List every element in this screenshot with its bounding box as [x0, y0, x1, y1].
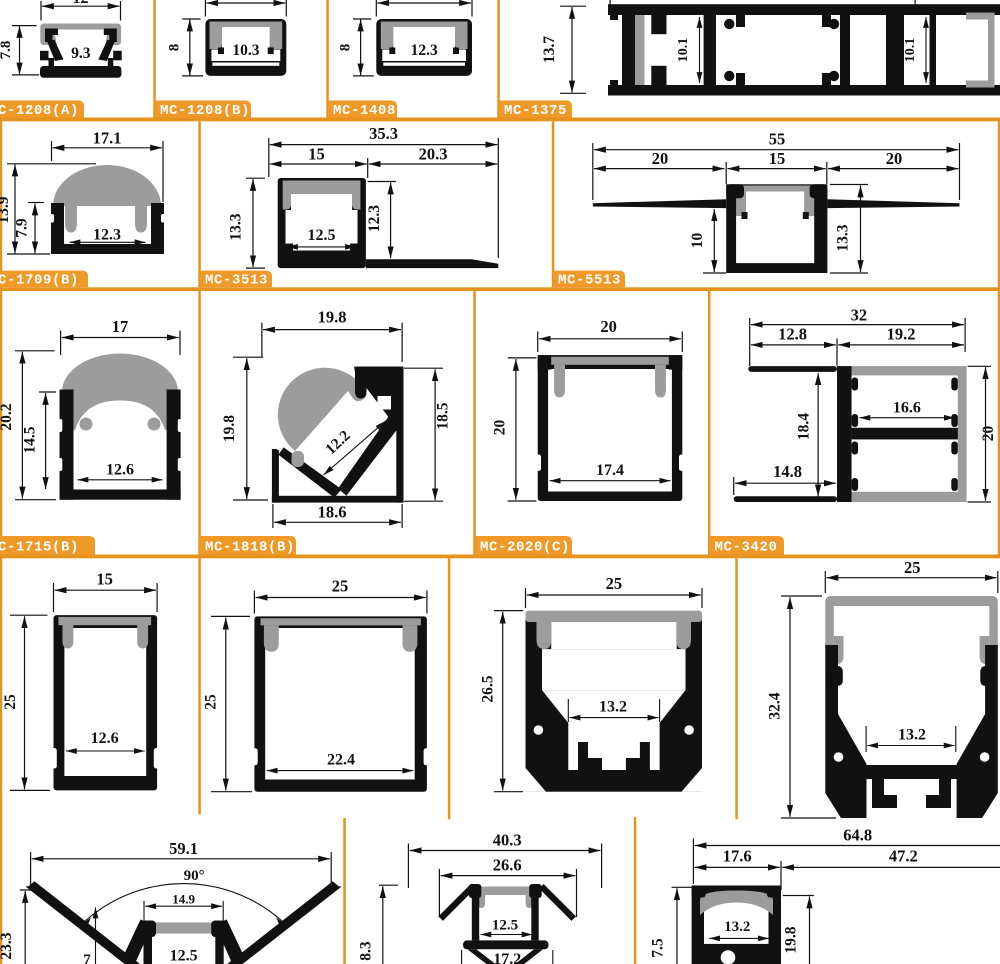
svg-text:13.9: 13.9 [0, 196, 12, 223]
svg-text:17: 17 [112, 317, 129, 336]
svg-text:MC-1715(B): MC-1715(B) [0, 540, 79, 556]
svg-text:MC-1408: MC-1408 [333, 103, 396, 119]
svg-text:12.6: 12.6 [91, 730, 119, 747]
svg-text:18.5: 18.5 [435, 402, 452, 429]
svg-text:8: 8 [338, 44, 354, 52]
svg-text:12.5: 12.5 [492, 918, 518, 934]
svg-text:7.8: 7.8 [0, 41, 14, 60]
svg-text:47.2: 47.2 [889, 847, 918, 866]
svg-text:64.8: 64.8 [843, 826, 872, 845]
svg-text:9.3: 9.3 [71, 45, 91, 62]
svg-text:19.8: 19.8 [221, 415, 238, 442]
svg-text:16.6: 16.6 [893, 400, 921, 417]
svg-text:13.2: 13.2 [724, 919, 750, 935]
svg-text:19.2: 19.2 [887, 325, 916, 344]
svg-text:20: 20 [492, 420, 509, 436]
svg-text:13.3: 13.3 [228, 213, 245, 240]
svg-text:10: 10 [689, 233, 706, 249]
svg-text:7.5: 7.5 [650, 938, 667, 958]
svg-text:7: 7 [83, 952, 91, 964]
svg-text:MC-3513: MC-3513 [205, 273, 268, 289]
svg-text:59.1: 59.1 [169, 839, 198, 858]
svg-text:35.3: 35.3 [369, 124, 398, 143]
svg-text:14.9: 14.9 [172, 892, 195, 907]
svg-text:26.5: 26.5 [480, 675, 497, 702]
svg-text:32.4: 32.4 [767, 692, 784, 719]
svg-text:20: 20 [886, 149, 903, 168]
svg-text:12.5: 12.5 [170, 948, 198, 964]
svg-text:MC-1375: MC-1375 [504, 103, 567, 119]
svg-text:90°: 90° [184, 868, 205, 884]
svg-text:7.9: 7.9 [14, 218, 31, 238]
svg-text:25: 25 [2, 694, 19, 710]
svg-text:25: 25 [332, 577, 349, 596]
svg-text:MC-5513: MC-5513 [558, 273, 621, 289]
svg-text:MC-2020(C): MC-2020(C) [480, 540, 570, 556]
svg-text:12.8: 12.8 [778, 325, 807, 344]
svg-text:17.2: 17.2 [493, 951, 521, 964]
svg-text:MC-3420: MC-3420 [715, 540, 778, 556]
svg-text:20.3: 20.3 [419, 145, 448, 164]
svg-text:14.5: 14.5 [22, 426, 39, 453]
svg-text:14.8: 14.8 [773, 462, 802, 481]
svg-text:23.3: 23.3 [0, 932, 15, 959]
svg-text:13.3: 13.3 [835, 224, 852, 251]
svg-text:12.6: 12.6 [106, 462, 134, 479]
svg-text:MC-1818(B): MC-1818(B) [205, 540, 295, 556]
svg-text:55: 55 [769, 130, 786, 149]
svg-text:32: 32 [851, 306, 868, 325]
svg-text:17.6: 17.6 [723, 847, 752, 866]
svg-text:12.3: 12.3 [93, 227, 121, 244]
svg-text:25: 25 [203, 694, 220, 710]
svg-text:10.1: 10.1 [903, 38, 918, 63]
svg-text:19.8: 19.8 [318, 308, 347, 327]
svg-text:MC-1208(A): MC-1208(A) [0, 103, 79, 119]
svg-text:13.7: 13.7 [541, 36, 558, 63]
svg-text:20: 20 [600, 317, 617, 336]
svg-text:MC-1709(B): MC-1709(B) [0, 273, 79, 289]
svg-text:12.3: 12.3 [411, 42, 438, 59]
svg-text:10.1: 10.1 [676, 38, 691, 63]
svg-text:25: 25 [904, 558, 921, 577]
svg-text:13.2: 13.2 [898, 727, 926, 744]
svg-text:15: 15 [308, 145, 325, 164]
svg-text:8.3: 8.3 [358, 941, 375, 961]
svg-text:18.4: 18.4 [796, 413, 813, 440]
svg-text:15: 15 [769, 149, 786, 168]
svg-text:40.3: 40.3 [493, 831, 522, 850]
svg-text:17.4: 17.4 [596, 462, 624, 479]
svg-text:12.3: 12.3 [366, 205, 383, 232]
svg-text:20: 20 [652, 149, 669, 168]
svg-text:20: 20 [980, 426, 997, 442]
svg-text:12.5: 12.5 [308, 227, 336, 244]
svg-text:19.8: 19.8 [783, 926, 800, 953]
svg-text:MC-1208(B): MC-1208(B) [160, 103, 250, 119]
svg-text:26.6: 26.6 [493, 856, 522, 875]
svg-text:10.3: 10.3 [232, 42, 259, 59]
svg-text:25: 25 [606, 574, 623, 593]
svg-text:18.6: 18.6 [318, 503, 347, 522]
svg-text:22.4: 22.4 [327, 752, 355, 769]
svg-text:17.1: 17.1 [93, 129, 122, 148]
svg-text:20.2: 20.2 [0, 403, 15, 430]
svg-text:15: 15 [96, 570, 113, 589]
svg-text:13.2: 13.2 [599, 699, 627, 716]
svg-text:8: 8 [167, 44, 183, 52]
